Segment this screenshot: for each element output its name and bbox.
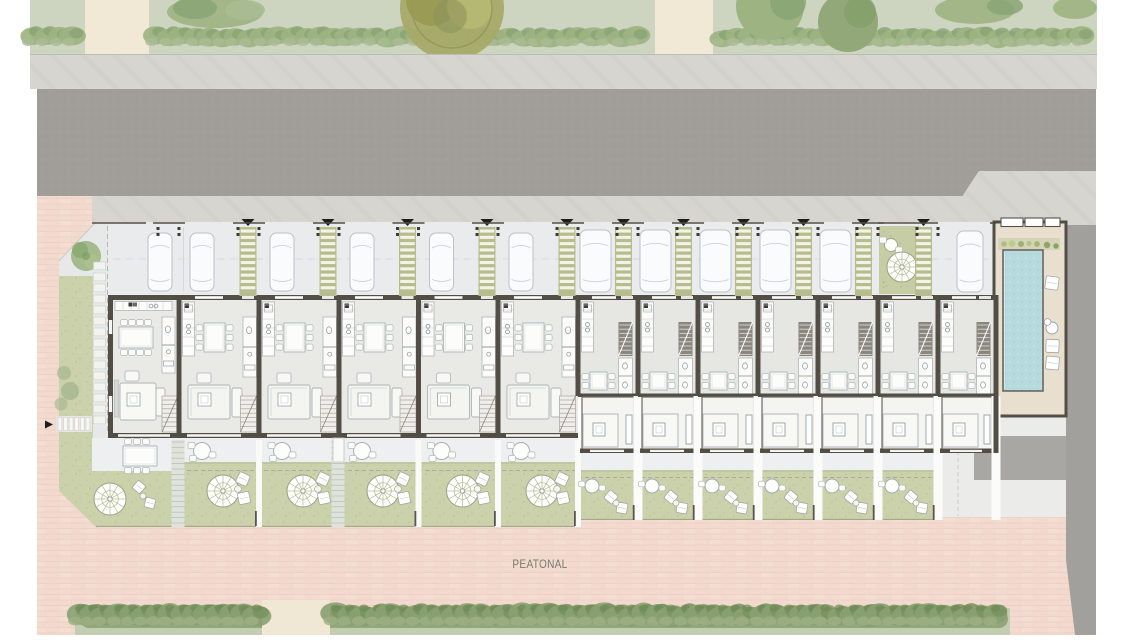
svg-text:PEATONAL: PEATONAL [512, 558, 567, 571]
